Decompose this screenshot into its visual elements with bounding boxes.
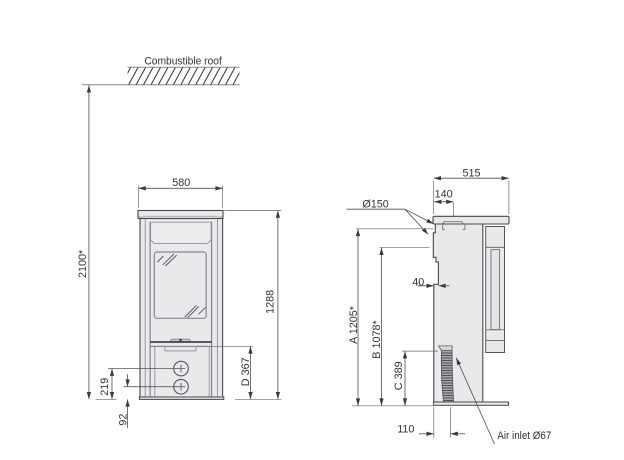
svg-text:Air inlet Ø67: Air inlet Ø67 bbox=[497, 430, 551, 442]
svg-text:110: 110 bbox=[397, 423, 414, 435]
svg-text:C 389: C 389 bbox=[393, 361, 405, 390]
svg-text:Ø150: Ø150 bbox=[362, 198, 388, 210]
svg-text:219: 219 bbox=[99, 378, 111, 396]
svg-text:92: 92 bbox=[117, 414, 129, 426]
svg-text:2100*: 2100* bbox=[77, 249, 89, 278]
svg-text:Combustible roof: Combustible roof bbox=[144, 55, 222, 67]
svg-text:580: 580 bbox=[172, 177, 190, 189]
svg-text:40: 40 bbox=[412, 276, 424, 288]
svg-text:140: 140 bbox=[435, 189, 453, 201]
svg-text:D 367: D 367 bbox=[240, 357, 252, 386]
svg-text:1288: 1288 bbox=[265, 290, 277, 314]
svg-text:B 1078*: B 1078* bbox=[371, 319, 383, 358]
svg-text:A 1205*: A 1205* bbox=[348, 305, 360, 344]
svg-text:515: 515 bbox=[462, 168, 480, 180]
